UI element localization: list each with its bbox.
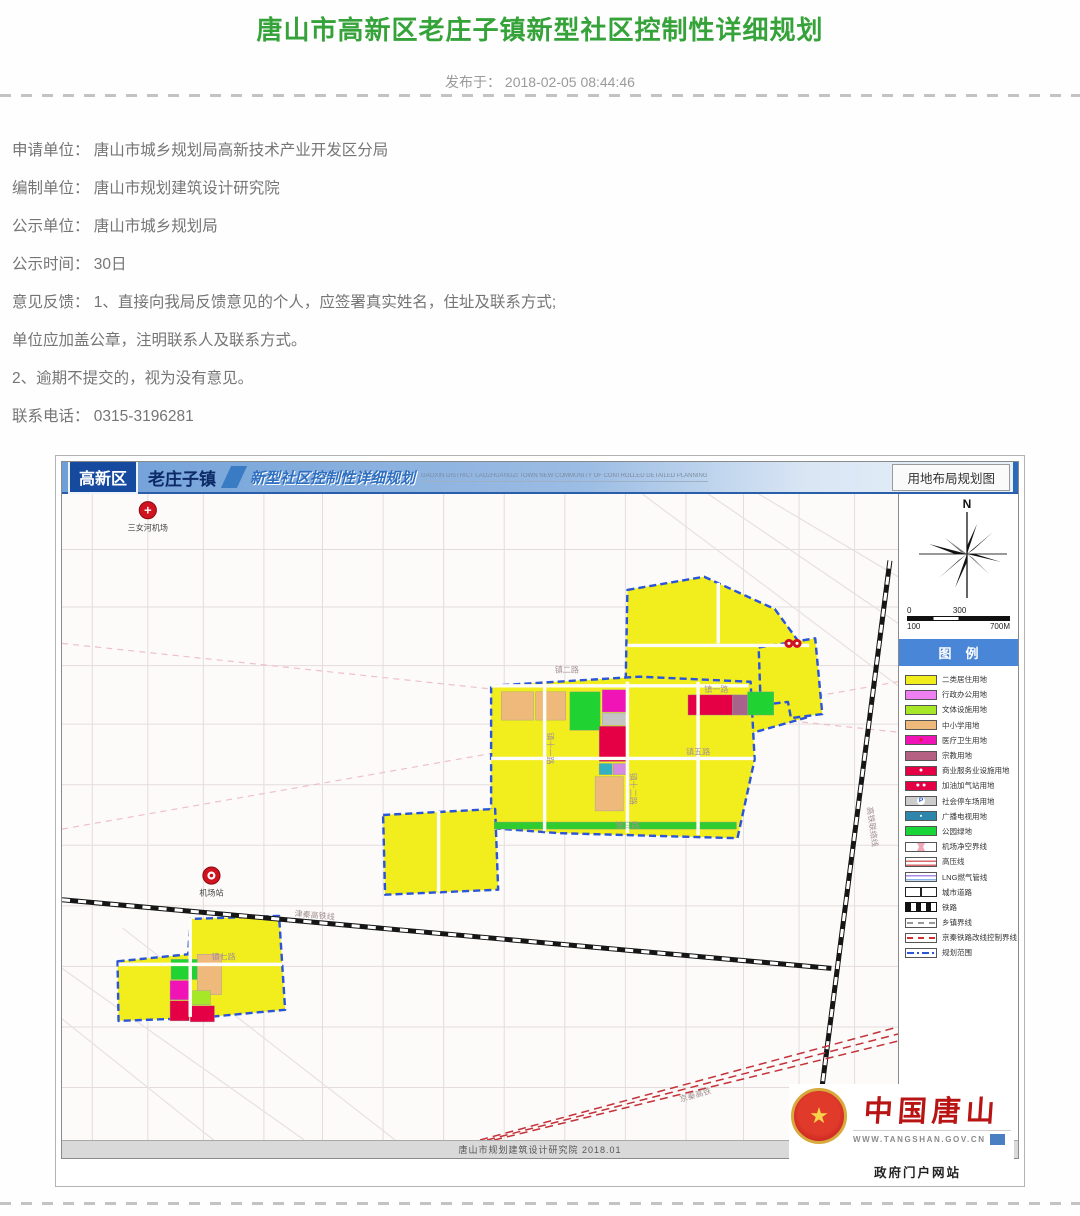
legend-item: 乡镇界线 xyxy=(905,915,1014,930)
body-line: 单位应加盖公章，注明联系人及联系方式。 xyxy=(12,332,1068,349)
legend-swatch-icon xyxy=(905,902,937,912)
legend-item: 行政办公用地 xyxy=(905,687,1014,702)
svg-text:镇七路: 镇七路 xyxy=(211,951,235,961)
legend-label: LNG燃气管线 xyxy=(942,872,987,883)
legend-label: 高压线 xyxy=(942,856,965,867)
legend-swatch-icon xyxy=(905,887,937,897)
dashed-divider-top xyxy=(0,94,1080,97)
legend-swatch-icon xyxy=(905,857,937,867)
legend-label: 规划范围 xyxy=(942,947,972,958)
brand-calligraphy: 中国唐山 xyxy=(852,1088,1013,1130)
svg-text:镇三路: 镇三路 xyxy=(615,820,639,830)
legend-item: 规划范围 xyxy=(905,945,1014,960)
star-icon: ★ xyxy=(809,1105,829,1127)
legend-item: 中小学用地 xyxy=(905,718,1014,733)
legend-swatch-icon xyxy=(905,842,937,852)
legend-item: 文体设施用地 xyxy=(905,702,1014,717)
plan-title-english: GAOXIN DISTRICT LAOZHUANGZI TOWN NEW COM… xyxy=(421,473,707,482)
svg-text:镇十一路: 镇十一路 xyxy=(546,732,556,764)
legend-label: 商业服务业设施用地 xyxy=(942,765,1010,776)
legend-title: 图例 xyxy=(899,639,1018,666)
svg-text:镇五路: 镇五路 xyxy=(686,746,710,756)
plan-title: 新型社区控制性详细规划 xyxy=(250,467,415,488)
legend-swatch-icon xyxy=(905,675,937,685)
town-name: 老庄子镇 xyxy=(138,465,226,490)
legend-swatch-icon: P xyxy=(905,796,937,806)
legend-swatch-icon xyxy=(905,720,937,730)
legend-item: +医疗卫生用地 xyxy=(905,733,1014,748)
legend-swatch-icon xyxy=(905,948,937,958)
tangshan-gov-logo: ★ 中国唐山 WWW.TANGSHAN.GOV.CN xyxy=(789,1084,1014,1166)
svg-text:机场站: 机场站 xyxy=(199,888,223,898)
map-type-label: 用地布局规划图 xyxy=(892,464,1010,491)
compass-north-label: N xyxy=(962,497,971,511)
body-line: 意见反馈： 1、直接向我局反馈意见的个人，应签署真实姓名，住址及联系方式; xyxy=(12,294,1068,311)
legend-swatch-icon xyxy=(905,705,937,715)
body-line: 公示单位： 唐山市城乡规划局 xyxy=(12,218,1068,235)
legend-swatch-icon xyxy=(905,872,937,882)
legend-item: 宗教用地 xyxy=(905,748,1014,763)
scale-0: 0 xyxy=(907,606,911,615)
legend-label: 城市道路 xyxy=(942,887,972,898)
scale-bar: 0 300 100 700M xyxy=(899,606,1018,631)
legend-swatch-icon xyxy=(905,826,937,836)
body-line: 联系电话： 0315-3196281 xyxy=(12,408,1068,425)
legend-item: 机场净空界线 xyxy=(905,839,1014,854)
national-emblem-icon: ★ xyxy=(791,1088,847,1144)
legend-swatch-icon: ● xyxy=(905,766,937,776)
legend-swatch-icon xyxy=(905,751,937,761)
legend-item: 京秦铁路改线控制界线 xyxy=(905,930,1014,945)
map-canvas: +三女河机场机场站镇二路镇一路镇五路镇三路镇七路镇十一路镇十二路津秦高铁线京秦高… xyxy=(62,494,898,1140)
gov-url: WWW.TANGSHAN.GOV.CN xyxy=(853,1130,1011,1145)
legend-label: 公园绿地 xyxy=(942,826,972,837)
legend-item: ● ●加油加气站用地 xyxy=(905,778,1014,793)
legend-label: 中小学用地 xyxy=(942,720,980,731)
legend-swatch-icon xyxy=(905,933,937,943)
legend-swatch-icon: + xyxy=(905,735,937,745)
legend-swatch-icon xyxy=(905,690,937,700)
legend-item: 二类居住用地 xyxy=(905,672,1014,687)
legend-item: 城市道路 xyxy=(905,885,1014,900)
legend-item: ▪广播电视用地 xyxy=(905,809,1014,824)
legend-label: 行政办公用地 xyxy=(942,689,987,700)
body-line: 2、逾期不提交的，视为没有意见。 xyxy=(12,370,1068,387)
legend-label: 机场净空界线 xyxy=(942,841,987,852)
body-line: 申请单位： 唐山市城乡规划局高新技术产业开发区分局 xyxy=(12,142,1068,159)
map-title-bar: 高新区 老庄子镇 新型社区控制性详细规划 GAOXIN DISTRICT LAO… xyxy=(62,462,1018,494)
page-title: 唐山市高新区老庄子镇新型社区控制性详细规划 xyxy=(0,10,1080,47)
compass-rose: N xyxy=(899,494,1018,606)
legend-swatch-icon xyxy=(905,918,937,928)
legend-label: 京秦铁路改线控制界线 xyxy=(942,932,1017,943)
legend-list: 二类居住用地行政办公用地文体设施用地中小学用地+医疗卫生用地宗教用地●商业服务业… xyxy=(899,666,1018,961)
legend-item: 高压线 xyxy=(905,854,1014,869)
announcement-page: 唐山市高新区老庄子镇新型社区控制性详细规划 发布于： 2018-02-05 08… xyxy=(0,0,1080,1216)
legend-item: LNG燃气管线 xyxy=(905,869,1014,884)
map-side-panel: N 0 300 100 7 xyxy=(898,494,1018,1140)
svg-text:镇二路: 镇二路 xyxy=(555,665,579,675)
legend-label: 广播电视用地 xyxy=(942,811,987,822)
legend-label: 二类居住用地 xyxy=(942,674,987,685)
district-badge: 高新区 xyxy=(68,461,138,494)
scale-100: 100 xyxy=(907,622,920,631)
legend-label: 铁路 xyxy=(942,902,957,913)
svg-text:+: + xyxy=(144,503,152,518)
publish-timestamp: 发布于： 2018-02-05 08:44:46 xyxy=(0,72,1080,92)
legend-item: ●商业服务业设施用地 xyxy=(905,763,1014,778)
header-edge xyxy=(1013,462,1018,492)
legend-item: P社会停车场用地 xyxy=(905,794,1014,809)
map-sheet: 高新区 老庄子镇 新型社区控制性详细规划 GAOXIN DISTRICT LAO… xyxy=(61,461,1019,1159)
svg-text:镇十二路: 镇十二路 xyxy=(628,773,638,805)
legend-label: 医疗卫生用地 xyxy=(942,735,987,746)
planning-map-figure[interactable]: 高新区 老庄子镇 新型社区控制性详细规划 GAOXIN DISTRICT LAO… xyxy=(55,455,1025,1187)
scale-300: 300 xyxy=(953,606,966,615)
body-line: 公示时间： 30日 xyxy=(12,256,1068,273)
body-line: 编制单位： 唐山市规划建筑设计研究院 xyxy=(12,180,1068,197)
svg-text:三女河机场: 三女河机场 xyxy=(128,522,168,532)
legend-label: 文体设施用地 xyxy=(942,704,987,715)
svg-text:镇一路: 镇一路 xyxy=(704,684,728,694)
legend-label: 乡镇界线 xyxy=(942,917,972,928)
legend-label: 社会停车场用地 xyxy=(942,796,995,807)
legend-swatch-icon: ● ● xyxy=(905,781,937,791)
legend-item: 铁路 xyxy=(905,900,1014,915)
gov-url-text: WWW.TANGSHAN.GOV.CN xyxy=(853,1135,986,1144)
planning-map: +三女河机场机场站镇二路镇一路镇五路镇三路镇七路镇十一路镇十二路津秦高铁线京秦高… xyxy=(62,494,898,1140)
legend-swatch-icon: ▪ xyxy=(905,811,937,821)
dashed-divider-bottom xyxy=(0,1202,1080,1205)
legend-item: 公园绿地 xyxy=(905,824,1014,839)
scale-bar-graphic xyxy=(907,616,1010,621)
scale-700m: 700M xyxy=(990,622,1010,631)
legend-label: 宗教用地 xyxy=(942,750,972,761)
legend-label: 加油加气站用地 xyxy=(942,780,995,791)
announcement-body: 申请单位： 唐山市城乡规划局高新技术产业开发区分局编制单位： 唐山市规划建筑设计… xyxy=(12,142,1068,446)
url-badge-icon xyxy=(990,1134,1005,1145)
